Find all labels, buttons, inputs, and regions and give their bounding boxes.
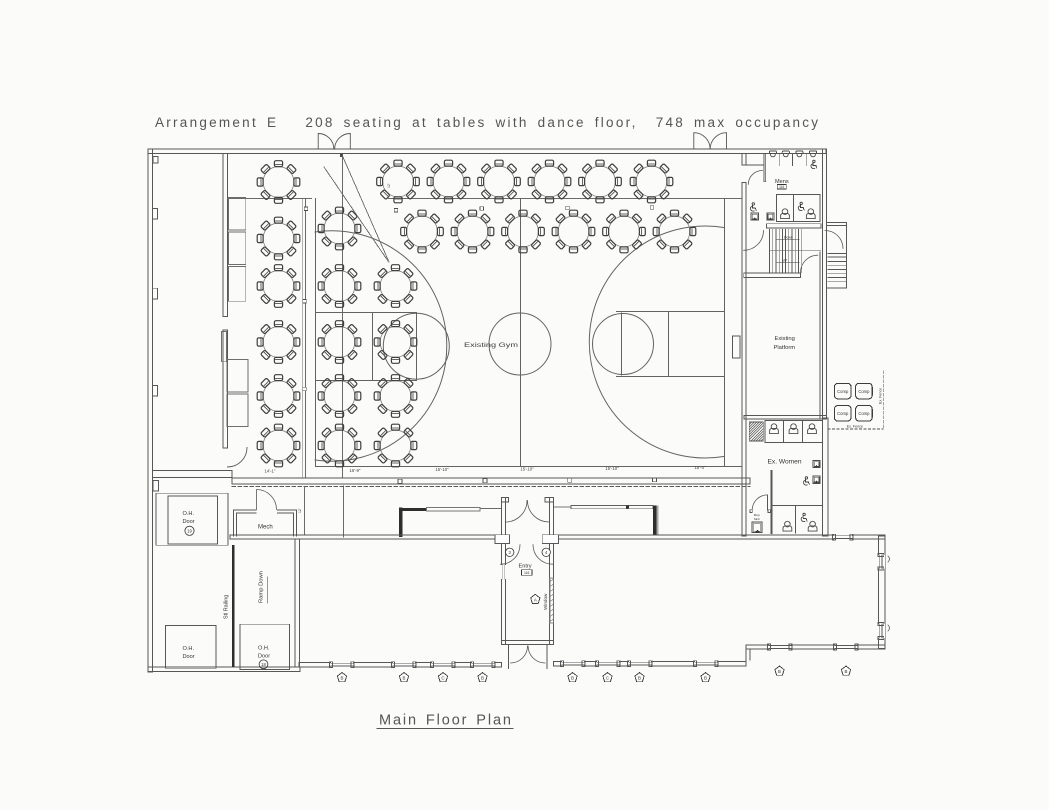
svg-text:B: B bbox=[845, 669, 848, 674]
svg-text:14'-1": 14'-1" bbox=[265, 469, 276, 474]
svg-text:Door: Door bbox=[183, 654, 195, 660]
svg-text:Arrangement E 208 seating at: Arrangement E 208 seating at tables with… bbox=[155, 115, 818, 130]
svg-text:O.H.: O.H. bbox=[183, 646, 195, 652]
svg-text:15'-10": 15'-10" bbox=[605, 466, 619, 471]
svg-text:Ex. Women: Ex. Women bbox=[768, 460, 802, 466]
svg-text:B: B bbox=[481, 676, 484, 681]
svg-text:Door: Door bbox=[258, 654, 270, 660]
svg-text:UP: UP bbox=[783, 258, 788, 262]
svg-text:B: B bbox=[571, 676, 574, 681]
svg-text:15'-10": 15'-10" bbox=[520, 466, 534, 471]
svg-text:Existing Gym: Existing Gym bbox=[464, 342, 518, 349]
svg-text:Main Floor Plan: Main Floor Plan bbox=[379, 713, 511, 729]
svg-text:C: C bbox=[606, 676, 609, 681]
svg-text:16'-9": 16'-9" bbox=[350, 468, 361, 473]
svg-text:116: 116 bbox=[779, 185, 784, 189]
svg-text:Ramp Down: Ramp Down bbox=[259, 571, 265, 603]
svg-text:Entry: Entry bbox=[519, 564, 532, 570]
svg-text:Platform: Platform bbox=[774, 345, 796, 351]
svg-text:Stl Railing: Stl Railing bbox=[224, 595, 230, 619]
svg-text:Existing: Existing bbox=[775, 336, 795, 342]
svg-text:12': 12' bbox=[387, 183, 391, 188]
svg-text:16'-4": 16'-4" bbox=[695, 465, 706, 470]
svg-text:Sink: Sink bbox=[754, 517, 760, 521]
svg-text:19: 19 bbox=[187, 529, 192, 534]
svg-text:O.H.: O.H. bbox=[183, 511, 195, 517]
svg-text:C: C bbox=[441, 676, 444, 681]
svg-text:O.H.: O.H. bbox=[258, 646, 270, 652]
svg-text:A: A bbox=[534, 597, 537, 602]
svg-text:B: B bbox=[704, 676, 707, 681]
svg-text:15'-10": 15'-10" bbox=[435, 467, 449, 472]
svg-text:Mech: Mech bbox=[258, 525, 273, 531]
svg-text:Down: Down bbox=[784, 236, 793, 240]
svg-text:B: B bbox=[403, 676, 406, 681]
svg-text:Window: Window bbox=[543, 593, 548, 610]
svg-text:B: B bbox=[341, 676, 344, 681]
svg-text:B: B bbox=[778, 669, 781, 674]
svg-text:B: B bbox=[638, 676, 641, 681]
svg-text:Ex. Fence: Ex. Fence bbox=[847, 424, 863, 428]
svg-text:Door: Door bbox=[183, 519, 195, 525]
svg-text:12': 12' bbox=[298, 508, 302, 513]
svg-text:Ex. Fence: Ex. Fence bbox=[879, 388, 883, 404]
svg-text:18: 18 bbox=[261, 662, 266, 667]
svg-text:116: 116 bbox=[524, 571, 530, 575]
